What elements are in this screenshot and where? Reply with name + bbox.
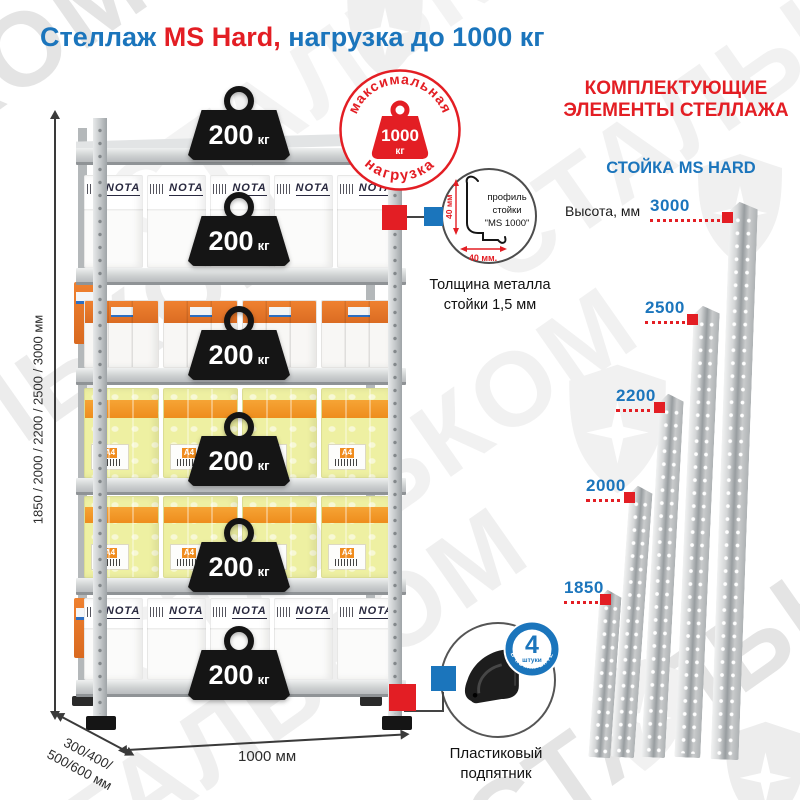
barcode-icon: [335, 459, 359, 466]
a4-label: A4: [340, 448, 354, 458]
height-label-2200: 2200: [616, 386, 658, 412]
shelf-board: [76, 268, 406, 285]
profile-marker-line: [407, 216, 425, 218]
weight-unit: кг: [258, 132, 270, 147]
height-value: 2000: [586, 476, 626, 495]
weight-icon: 200кг: [187, 192, 291, 266]
foot-marker-line-v: [442, 692, 444, 712]
weight-icon: 200кг: [187, 86, 291, 160]
title-suffix: нагрузка до 1000 кг: [281, 22, 545, 52]
profile-dim-vertical: 40 мм: [445, 195, 454, 219]
dotted-leader: [616, 409, 658, 412]
weight-icon: 200кг: [187, 412, 291, 486]
foot-caption-line1: Пластиковый: [450, 745, 543, 762]
weight-value: 200: [209, 554, 254, 581]
rack-rear-foot: [72, 696, 94, 706]
height-label-2500: 2500: [645, 298, 691, 324]
profile-label-line3: "MS 1000": [481, 218, 533, 231]
barcode-icon: [150, 607, 165, 617]
red-square-marker: [722, 212, 733, 223]
dotted-leader: [645, 321, 691, 324]
profile-dim-horizontal: 40 мм.: [469, 253, 497, 263]
box-label: A4: [328, 544, 366, 570]
page-title: Стеллаж MS Hard, нагрузка до 1000 кг: [40, 22, 545, 53]
height-column-label: Высота, мм: [565, 203, 640, 219]
profile-caption: Толщина металластойки 1,5 мм: [414, 276, 566, 315]
weight-unit: кг: [258, 458, 270, 473]
profile-caption-line2: стойки 1,5 мм: [444, 297, 537, 313]
box-brand-label: NOTA: [232, 606, 266, 619]
profile-marker-red: [382, 205, 407, 230]
dotted-leader: [586, 499, 628, 502]
width-dimension-label: 1000 мм: [238, 748, 296, 765]
weight-value: 200: [209, 448, 254, 475]
profile-label-line1: профиль: [481, 192, 533, 205]
components-header: КОМПЛЕКТУЮЩИЕЭЛЕМЕНТЫ СТЕЛЛАЖА: [548, 78, 800, 123]
height-value: 2200: [616, 386, 656, 405]
foot-marker-red: [389, 684, 416, 711]
profile-label: профиль стойки "MS 1000": [481, 192, 533, 230]
weight-value: 200: [209, 342, 254, 369]
rack-front-left-upright: [93, 118, 107, 720]
foot-caption-line2: подпятник: [460, 765, 531, 782]
red-square-marker: [687, 314, 698, 325]
foot-marker-blue: [431, 666, 456, 691]
weight-value: 200: [209, 662, 254, 689]
components-header-line1: КОМПЛЕКТУЮЩИЕ: [585, 78, 768, 99]
max-load-value: 1000: [381, 126, 419, 145]
profile-marker-blue: [424, 207, 443, 226]
foot-badge-unit-word: штуки: [522, 657, 542, 664]
profile-caption-line1: Толщина металла: [429, 277, 550, 293]
max-load-unit: кг: [395, 146, 404, 157]
foot-caption: Пластиковыйподпятник: [428, 744, 564, 785]
title-prefix: Стеллаж: [40, 22, 164, 52]
components-subheader: СТОЙКА MS HARD: [556, 159, 800, 178]
weight-unit: кг: [258, 672, 270, 687]
post-3000: [711, 202, 758, 761]
perforation-holes: [97, 124, 103, 714]
box-brand-label: NOTA: [106, 606, 140, 619]
barcode-icon: [150, 184, 165, 194]
dotted-leader: [650, 219, 726, 222]
red-square-marker: [600, 594, 611, 605]
weight-unit: кг: [258, 238, 270, 253]
box-brand-label: NOTA: [106, 183, 140, 196]
rack-foot: [86, 716, 116, 730]
box-brand-label: NOTA: [296, 183, 330, 196]
box-label: [348, 307, 370, 317]
height-label-1850: 1850: [564, 578, 604, 604]
barcode-icon: [213, 607, 228, 617]
height-label-3000: 3000: [650, 196, 726, 222]
box-stripe: [322, 507, 395, 523]
carton-box: [321, 300, 396, 368]
dotted-leader: [564, 601, 604, 604]
box-stripe: [322, 400, 395, 418]
weight-value: 200: [209, 122, 254, 149]
rack-rear-foot: [360, 696, 382, 706]
box-brand-label: NOTA: [296, 606, 330, 619]
weight-unit: кг: [258, 564, 270, 579]
perforation-holes: [728, 214, 752, 756]
max-load-badge: максимальная нагрузка 1000 кг: [338, 68, 462, 192]
box-label: [111, 307, 133, 317]
box-orange-lid: [322, 301, 395, 323]
height-value: 1850: [564, 578, 604, 597]
red-square-marker: [624, 492, 635, 503]
components-header-line2: ЭЛЕМЕНТЫ СТЕЛЛАЖА: [563, 100, 788, 121]
weight-value: 200: [209, 228, 254, 255]
box-brand-label: NOTA: [169, 606, 203, 619]
height-label-2000: 2000: [586, 476, 628, 502]
height-dimension-label: 1850 / 2000 / 2200 / 2500 / 3000 мм: [31, 280, 46, 560]
paper-ream-box: A4: [321, 388, 396, 478]
weight-unit: кг: [258, 352, 270, 367]
title-model: MS Hard,: [164, 22, 281, 52]
weight-icon: 200кг: [187, 626, 291, 700]
paper-ream-box: A4: [321, 496, 396, 578]
barcode-icon: [335, 559, 359, 566]
a4-label: A4: [340, 548, 354, 558]
profile-label-line2: стойки: [481, 205, 533, 218]
height-value: 2500: [645, 298, 685, 317]
barcode-icon: [277, 607, 292, 617]
foot-count-badge: В КОМПЛЕКТЕ 4 штуки: [503, 620, 561, 678]
product-infographic-page: СТАЛЬКОМ СТАЛЬКОМ СТАЛЬКОМ СТАЛЬКОМ СТАЛ…: [0, 0, 800, 800]
rack-foot: [382, 716, 412, 730]
foot-badge-count: 4: [525, 631, 539, 659]
red-square-marker: [654, 402, 665, 413]
height-value: 3000: [650, 196, 690, 215]
height-dimension-line: [54, 118, 56, 712]
weight-icon: 200кг: [187, 306, 291, 380]
weight-icon: 200кг: [187, 518, 291, 592]
box-label: A4: [328, 444, 366, 470]
barcode-icon: [340, 607, 355, 617]
